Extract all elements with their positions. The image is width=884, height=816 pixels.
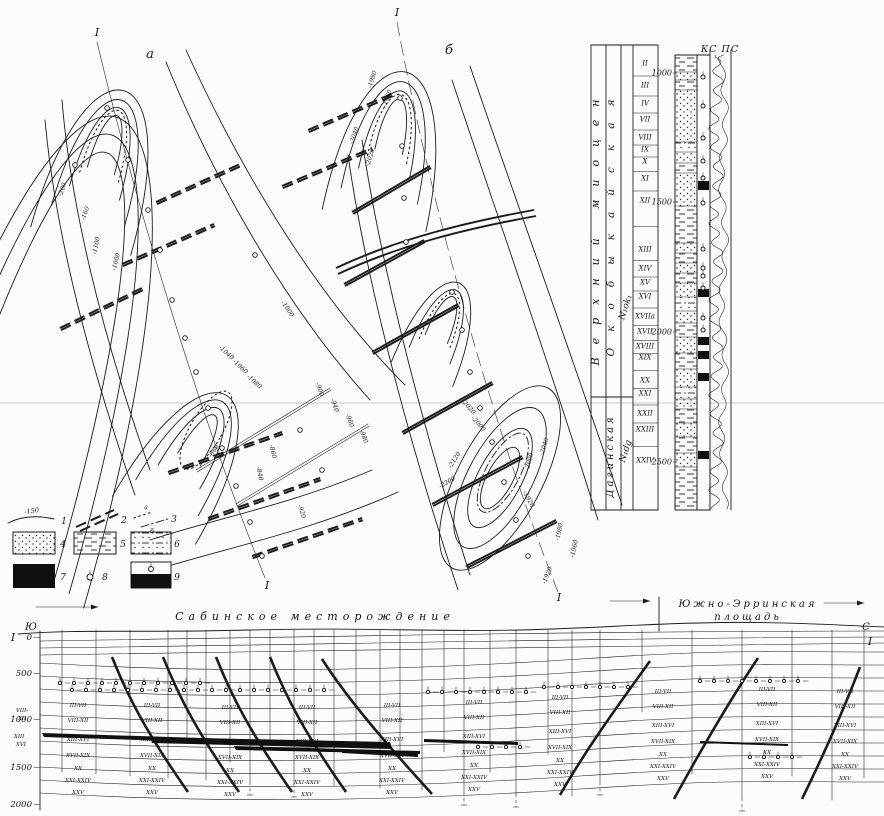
area-title-line2: площадь — [714, 612, 782, 623]
contour-label: -2000 — [524, 452, 535, 471]
well-marker — [248, 520, 253, 525]
well-marker — [398, 96, 403, 101]
unit-label: XX — [73, 766, 83, 772]
unit-label: XXV — [467, 787, 481, 793]
unit-label: XVII-XIX — [650, 739, 676, 745]
unit-label: XVII-XIX — [294, 755, 320, 761]
well-marker — [450, 290, 455, 295]
suite-daginskaya-code: N₁dg — [617, 439, 634, 465]
lithology-segment — [675, 253, 697, 263]
flank-contour — [348, 155, 458, 590]
gas-show-icon — [476, 745, 479, 748]
gas-show-icon — [170, 681, 173, 684]
unit-label: VIII-XII — [142, 718, 164, 724]
unit-label: XIII-XVI — [462, 734, 486, 740]
south-direction-label: Ю — [24, 622, 37, 633]
lithology-segment — [675, 337, 697, 353]
unit-label: XIII-XVI — [380, 737, 404, 743]
unit-label: III-VII — [221, 705, 239, 711]
gas-show-icon — [701, 286, 705, 290]
unit-label: XXI-XXIV — [293, 780, 321, 786]
well-marker — [468, 370, 473, 375]
unit-label: VIII-XII — [835, 704, 857, 710]
thrust-fault — [560, 661, 650, 795]
lithology-segment — [675, 243, 697, 253]
oil-saturated-interval — [698, 337, 709, 345]
unit-label: XVII-XIX — [754, 737, 780, 743]
depth-label: 1000 — [652, 69, 672, 78]
unit-label: VIII-XII — [297, 720, 319, 726]
gas-show-icon — [308, 688, 311, 691]
legend-item-number: 5 — [120, 540, 126, 550]
oil-bed-swatch — [13, 564, 55, 588]
unit-label: XXI-XXIV — [216, 780, 244, 786]
stage-label: Верхний миоцен — [589, 86, 602, 366]
well-marker — [402, 196, 407, 201]
well-marker — [146, 208, 151, 213]
contour-label: -1000 — [279, 300, 295, 319]
lithology-segment — [675, 263, 697, 273]
contact-a-symbol — [134, 512, 152, 518]
unit-label: XIII-XVI — [833, 723, 857, 729]
unit-label: III-VII — [143, 703, 161, 709]
log-curve — [719, 55, 729, 509]
suite-daginskaya-label: Дагинская — [605, 414, 616, 498]
unit-label: XXV — [223, 792, 237, 798]
contour-label: -1080 — [245, 373, 263, 390]
contour-label: -1100 — [91, 236, 102, 255]
gas-show-icon — [210, 688, 213, 691]
layer-label: XIII — [637, 246, 652, 254]
well-marker — [158, 248, 163, 253]
legend-item-number: 7 — [60, 573, 66, 583]
section-trace-line — [97, 42, 265, 578]
well-marker — [220, 446, 225, 451]
unit-label: XXI-XXIV — [378, 778, 406, 784]
gas-show-icon — [196, 688, 199, 691]
unit-label: VIII-XII — [550, 710, 572, 716]
anticline-nose — [391, 271, 489, 387]
map-b-section-mark-top: I — [394, 6, 400, 19]
lithology-segment — [675, 206, 697, 243]
gas-show-icon — [156, 681, 159, 684]
oil-saturated-interval — [698, 451, 709, 459]
fault-line — [237, 426, 369, 506]
lithology-segment — [675, 80, 697, 90]
contour-label: -1920 — [541, 566, 554, 585]
contour-label: -1960 — [569, 539, 580, 558]
lithology-segment — [675, 142, 697, 152]
well-marker — [460, 328, 465, 333]
unit-label: XXI-XXIV — [753, 762, 781, 768]
unit-label: XXI-XXIV — [460, 775, 488, 781]
gas-show-icon — [701, 176, 705, 180]
lithology-segment — [675, 399, 697, 409]
unit-label: VIII-XII — [68, 718, 90, 724]
unit-label: XX — [840, 752, 850, 758]
well-marker — [260, 554, 265, 559]
contour-label: -920 — [296, 504, 307, 519]
well-marker — [73, 163, 78, 168]
unit-label: III-VII — [758, 687, 776, 693]
gas-show-icon — [701, 328, 705, 332]
direction-arrow — [91, 605, 98, 610]
unit-label: XXV — [71, 790, 85, 796]
clay-swatch — [74, 532, 116, 554]
gas-show-icon — [518, 745, 521, 748]
contour-label: -2020 — [364, 148, 376, 167]
contour-label: -1960 — [381, 89, 393, 108]
layer-label: XXI — [638, 390, 652, 398]
unit-label: VIII-XII — [653, 704, 675, 710]
gas-cap-swatch-oil — [131, 574, 171, 588]
gas-show-icon — [782, 679, 785, 682]
well-marker — [253, 253, 258, 258]
fault-line — [157, 166, 241, 204]
gas-show-icon — [570, 685, 573, 688]
sandy-clay-swatch — [131, 532, 171, 554]
unit-label: XXV — [553, 782, 567, 788]
unit-label: III-VII — [654, 689, 672, 695]
depth-label: 2500 — [651, 458, 672, 467]
gas-show-icon — [712, 679, 715, 682]
gas-show-icon — [701, 136, 705, 140]
unit-label: III-VII — [298, 705, 316, 711]
well-marker — [105, 106, 110, 111]
contour-label: -1980 — [366, 70, 378, 89]
depth-tick-label: 0 — [27, 633, 33, 643]
legend-item-number: 6 — [174, 540, 180, 550]
unit-label: XIII-XVI — [140, 737, 164, 743]
contour-line — [391, 271, 489, 387]
contour-label: -960 — [344, 413, 355, 429]
flank-contour — [172, 492, 398, 565]
edge-unit-label: VIII- — [16, 708, 28, 714]
contour-line — [87, 112, 130, 175]
contour-label: -200 — [57, 182, 68, 197]
gas-show-icon — [701, 75, 705, 79]
contour-line — [455, 419, 545, 537]
fault-line — [353, 168, 431, 214]
gas-show-icon — [496, 690, 499, 693]
gas-show-icon — [524, 690, 527, 693]
layer-label: VII — [640, 116, 651, 124]
unit-label: XIII-XVI — [548, 729, 572, 735]
gas-show-icon — [87, 574, 93, 580]
well-marker — [490, 440, 495, 445]
strata-line — [40, 782, 884, 800]
cross-section: 0500100015002000III-VIIVIII-XIIXIII-XVIX… — [9, 597, 884, 811]
gas-show-icon — [468, 690, 471, 693]
layer-label: XVII — [636, 328, 653, 336]
gas-show-icon — [584, 685, 587, 688]
gas-show-icon — [128, 681, 131, 684]
unit-label: III-VII — [69, 703, 87, 709]
contour-label: -2200 — [438, 475, 457, 490]
sandstone-swatch — [13, 532, 55, 554]
gas-show-icon — [701, 104, 705, 108]
unit-label: XX — [469, 763, 479, 769]
fault-line — [61, 290, 143, 330]
legend-item-number: 3 — [171, 515, 177, 525]
lithology-segment — [675, 90, 697, 142]
flank-contour — [452, 80, 598, 520]
contact-b-symbol — [141, 519, 168, 527]
section-mark-right: I — [867, 635, 873, 648]
gas-show-icon — [754, 679, 757, 682]
gas-show-icon — [612, 685, 615, 688]
gas-show-icon — [184, 681, 187, 684]
gas-show-icon — [112, 688, 115, 691]
unit-label: XXI-XXIV — [831, 764, 859, 770]
unit-label: XIII-XVI — [651, 723, 675, 729]
layer-label: XV — [639, 279, 651, 287]
well-marker — [400, 144, 405, 149]
layer-label: XVIII — [635, 343, 655, 351]
lithology-segment — [675, 152, 697, 163]
gas-show-icon — [440, 690, 443, 693]
well-marker — [320, 468, 325, 473]
contour-line — [158, 397, 239, 489]
legend-sub-a: а — [144, 504, 148, 511]
gas-show-icon — [556, 685, 559, 688]
layer-label: XI — [640, 175, 649, 183]
fault-line — [252, 518, 362, 556]
suite-okobykayskaya-code: N₁ok₁ — [617, 293, 635, 322]
flank-contour — [186, 50, 405, 385]
lithology-segment — [675, 409, 697, 423]
lithology-segment — [675, 369, 697, 387]
legend-item-number: 4 — [59, 540, 66, 550]
well-marker — [404, 240, 409, 245]
unit-label: XXV — [838, 776, 852, 782]
fault-line — [352, 166, 430, 212]
gas-show-icon — [454, 690, 457, 693]
gas-show-icon — [58, 681, 61, 684]
contour-label: -2040 — [348, 126, 360, 145]
contour-label: -1060 — [231, 358, 249, 375]
oil-saturated-interval — [698, 351, 709, 359]
flank-contour — [62, 100, 150, 470]
anticline-nose — [112, 368, 269, 544]
field-title-sabinskoe: Сабинское месторождение — [175, 610, 455, 623]
gas-show-icon — [86, 681, 89, 684]
lithology-segment — [675, 437, 697, 453]
lithology-segment — [675, 273, 697, 283]
contour-label: -1040 — [217, 344, 235, 361]
well-marker — [194, 370, 199, 375]
gas-show-icon — [198, 681, 201, 684]
contour-label: -980 — [358, 429, 369, 445]
gas-show-icon — [701, 201, 705, 205]
gas-show-icon — [768, 679, 771, 682]
gas-show-icon — [114, 681, 117, 684]
unit-label: XX — [387, 766, 397, 772]
well-marker — [478, 406, 483, 411]
unit-label: XXV — [145, 790, 159, 796]
gas-show-icon — [182, 688, 185, 691]
unit-label: XVII-XIX — [217, 755, 243, 761]
contour-line — [0, 111, 194, 593]
edge-unit-label: XII — [17, 716, 27, 722]
section-mark-left: I — [10, 631, 16, 644]
lithology-segment — [675, 387, 697, 399]
layer-label: XIX — [638, 354, 653, 362]
contour-label: -2120 — [447, 451, 462, 470]
depth-tick-label: 2000 — [9, 800, 32, 810]
gas-show-icon — [98, 688, 101, 691]
unit-label: III-VII — [551, 695, 569, 701]
fault-line — [156, 164, 240, 202]
contour-label: -1980 — [554, 522, 565, 541]
fault-line — [122, 224, 214, 264]
gas-show-icon — [149, 567, 154, 572]
legend-item-number: 9 — [174, 573, 180, 583]
layer-label: X — [642, 158, 649, 166]
unit-label: XVII-XIX — [547, 745, 573, 751]
gas-show-icon — [294, 688, 297, 691]
legend-item-number: 1 — [61, 517, 67, 527]
unit-label: XX — [302, 768, 312, 774]
thrust-fault — [802, 667, 860, 799]
direction-arrow — [643, 599, 650, 604]
contour-label: -940 — [329, 398, 340, 414]
well-marker — [170, 298, 175, 303]
layer-label: VIII — [638, 134, 652, 142]
gas-show-icon — [168, 688, 171, 691]
map-a-section-mark-bottom: I — [264, 579, 270, 592]
unit-label: XXI-XXIV — [649, 764, 677, 770]
unit-label: III-VII — [836, 689, 854, 695]
gas-show-icon — [142, 681, 145, 684]
layer-label: XVI — [638, 293, 652, 301]
unit-label: XXV — [385, 790, 399, 796]
lithology-segment — [675, 353, 697, 369]
layer-label: IV — [640, 100, 650, 108]
well-marker — [526, 554, 531, 559]
contour-label: -860 — [267, 444, 277, 459]
unit-label: XXI-XXIV — [546, 770, 574, 776]
lithology-segment — [675, 453, 697, 467]
layer-label: XX — [639, 377, 651, 385]
gas-show-icon — [72, 681, 75, 684]
gas-show-icon — [776, 755, 779, 758]
lithology-segment — [675, 423, 697, 437]
unit-label: VIII-XII — [464, 715, 486, 721]
depth-label: 1500 — [652, 198, 672, 207]
layer-label: XXII — [636, 410, 653, 418]
gas-show-icon — [626, 685, 629, 688]
gas-show-icon — [280, 688, 283, 691]
gas-show-icon — [748, 755, 751, 758]
unit-label: XXV — [300, 792, 314, 798]
map-a-section-mark-top: I — [94, 26, 100, 39]
contour-label: -1000 — [111, 252, 122, 271]
structural-contour-symbol — [8, 517, 54, 523]
well-marker — [126, 158, 131, 163]
depth-tick-label: 1500 — [10, 763, 32, 773]
flank-contour — [362, 140, 470, 575]
suite-okobykayskaya-label: Окобыкайская — [605, 84, 617, 357]
lithology-segment — [675, 72, 697, 80]
unit-label: XVII-XIX — [461, 750, 487, 756]
unit-label: XX — [555, 758, 565, 764]
gas-show-icon — [322, 688, 325, 691]
log-curve — [709, 55, 724, 509]
gas-show-icon — [482, 690, 485, 693]
depth-label: 2000 — [651, 328, 672, 337]
lithology-segment — [675, 297, 697, 311]
gas-show-icon — [542, 685, 545, 688]
contour-line — [375, 96, 414, 154]
layer-label: III — [640, 82, 650, 90]
contour-line — [80, 105, 138, 183]
geological-figure: -200-160-1100-1000-1040-1060-1080-900-94… — [0, 0, 884, 816]
unit-label: XX — [762, 750, 772, 756]
contour-line — [409, 282, 476, 364]
unit-label: XIII-XVI — [66, 737, 90, 743]
gas-show-icon — [701, 266, 705, 270]
strata-line — [40, 631, 884, 641]
contour-label: -2000 — [470, 415, 487, 433]
unit-label: VIII-XII — [220, 720, 242, 726]
thrust-fault — [322, 659, 432, 794]
direction-arrow — [857, 601, 864, 606]
layer-label: XIV — [638, 265, 653, 273]
gas-show-icon — [266, 688, 269, 691]
fault-line — [60, 288, 142, 328]
north-direction-label: С — [862, 622, 870, 633]
lithology-segment — [675, 311, 697, 323]
unit-label: XXI-XXIV — [138, 778, 166, 784]
unit-label: XX — [658, 752, 668, 758]
unit-label: XVII-XIX — [832, 739, 858, 745]
unit-label: VIII-XII — [757, 702, 779, 708]
oil-saturated-interval — [698, 181, 709, 190]
contour-line — [112, 371, 267, 544]
fault-line — [372, 304, 458, 352]
well-marker — [206, 406, 211, 411]
gas-show-icon — [70, 688, 73, 691]
gas-show-icon — [701, 159, 705, 163]
gas-show-icon — [598, 685, 601, 688]
legend: -15012аб3456789 — [8, 504, 180, 588]
gas-show-icon — [790, 755, 793, 758]
contour-label: -2040 — [538, 437, 550, 456]
gas-show-icon — [100, 681, 103, 684]
oil-saturated-interval — [698, 373, 709, 381]
map-b-section-mark-bottom: I — [556, 591, 562, 604]
unit-label: III-VII — [383, 703, 401, 709]
unit-label: VIII-XII — [382, 718, 404, 724]
fault-line — [466, 520, 556, 566]
fault-line — [344, 240, 424, 284]
gas-show-icon — [140, 688, 143, 691]
layer-label: XXIII — [635, 426, 654, 434]
fault-line — [467, 522, 557, 568]
legend-item-number: 2 — [120, 516, 127, 526]
contour-label: -840 — [255, 466, 264, 481]
layer-label: XVIIа — [634, 313, 655, 321]
well-marker — [183, 336, 188, 341]
unit-label: XIII-XVI — [295, 739, 319, 745]
contour-label: -1920 — [521, 490, 536, 509]
well-marker — [234, 484, 239, 489]
gas-show-icon — [701, 274, 705, 278]
unit-label: XIII-XVI — [218, 739, 242, 745]
geological-figure-page: -200-160-1100-1000-1040-1060-1080-900-94… — [0, 0, 884, 816]
layer-label: II — [641, 60, 648, 68]
